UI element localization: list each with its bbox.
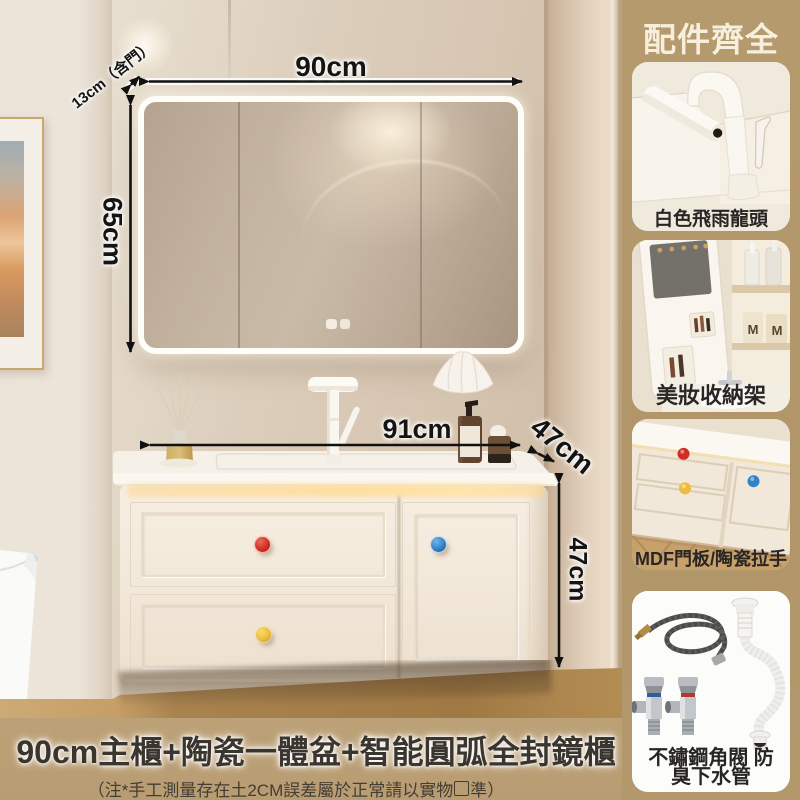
svg-text:M: M [772, 323, 783, 338]
svg-text:M: M [748, 322, 759, 337]
